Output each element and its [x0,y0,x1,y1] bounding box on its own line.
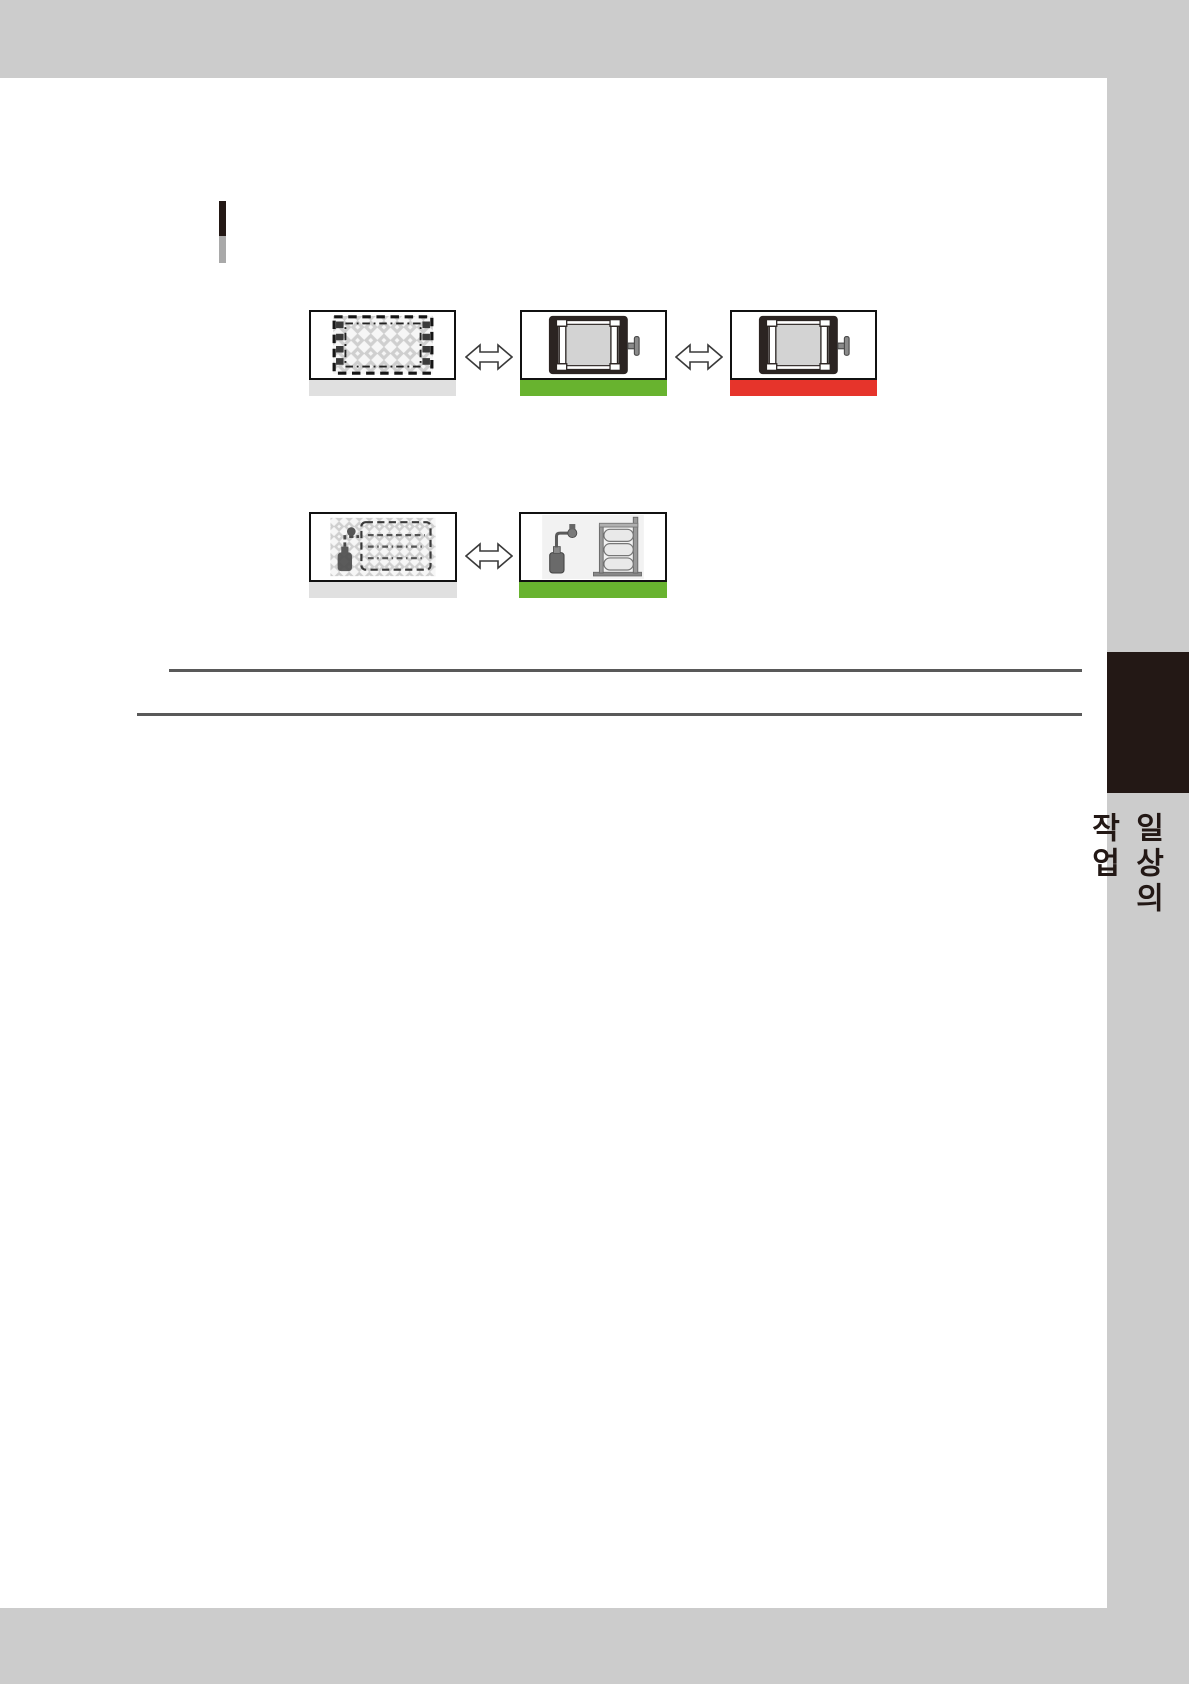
state-card-row2-empty [309,512,457,598]
stack-device-crosshatch-illustration [309,512,457,582]
state-card-row1-installed-ok [520,310,667,396]
stack-device-with-pump-illustration [519,512,667,582]
manual-page: 일상의 작업 [0,0,1189,1684]
crosshatch-frame-icon [331,314,435,376]
status-bar-red [730,380,877,396]
device-installed-frame-illustration [730,310,877,380]
horizontal-rule-upper [169,669,1082,672]
section-marker-bottom [219,236,226,263]
status-bar-green [520,380,667,396]
chapter-tab-label: 일상의 작업 [1124,812,1168,982]
slot-empty-crosshatch-illustration [309,310,456,380]
status-bar-gray [309,380,456,396]
state-card-row1-empty [309,310,456,396]
chapter-tab [1107,652,1189,793]
state-card-row1-installed-error [730,310,877,396]
top-chrome-bar [0,0,1189,78]
status-bar-gray [309,582,457,598]
device-installed-frame-illustration [520,310,667,380]
crosshatch-stack-icon [329,516,437,578]
device-frame-icon [756,314,852,376]
left-right-double-arrow-icon [675,342,723,372]
bottom-chrome-bar [0,1608,1189,1684]
device-frame-icon [546,314,642,376]
horizontal-rule-lower [137,713,1082,716]
left-right-double-arrow-icon [465,342,513,372]
section-marker-top [219,201,226,236]
stack-device-icon [541,515,645,579]
status-bar-green [519,582,667,598]
state-card-row2-installed-ok [519,512,667,598]
left-right-double-arrow-icon [465,541,513,571]
